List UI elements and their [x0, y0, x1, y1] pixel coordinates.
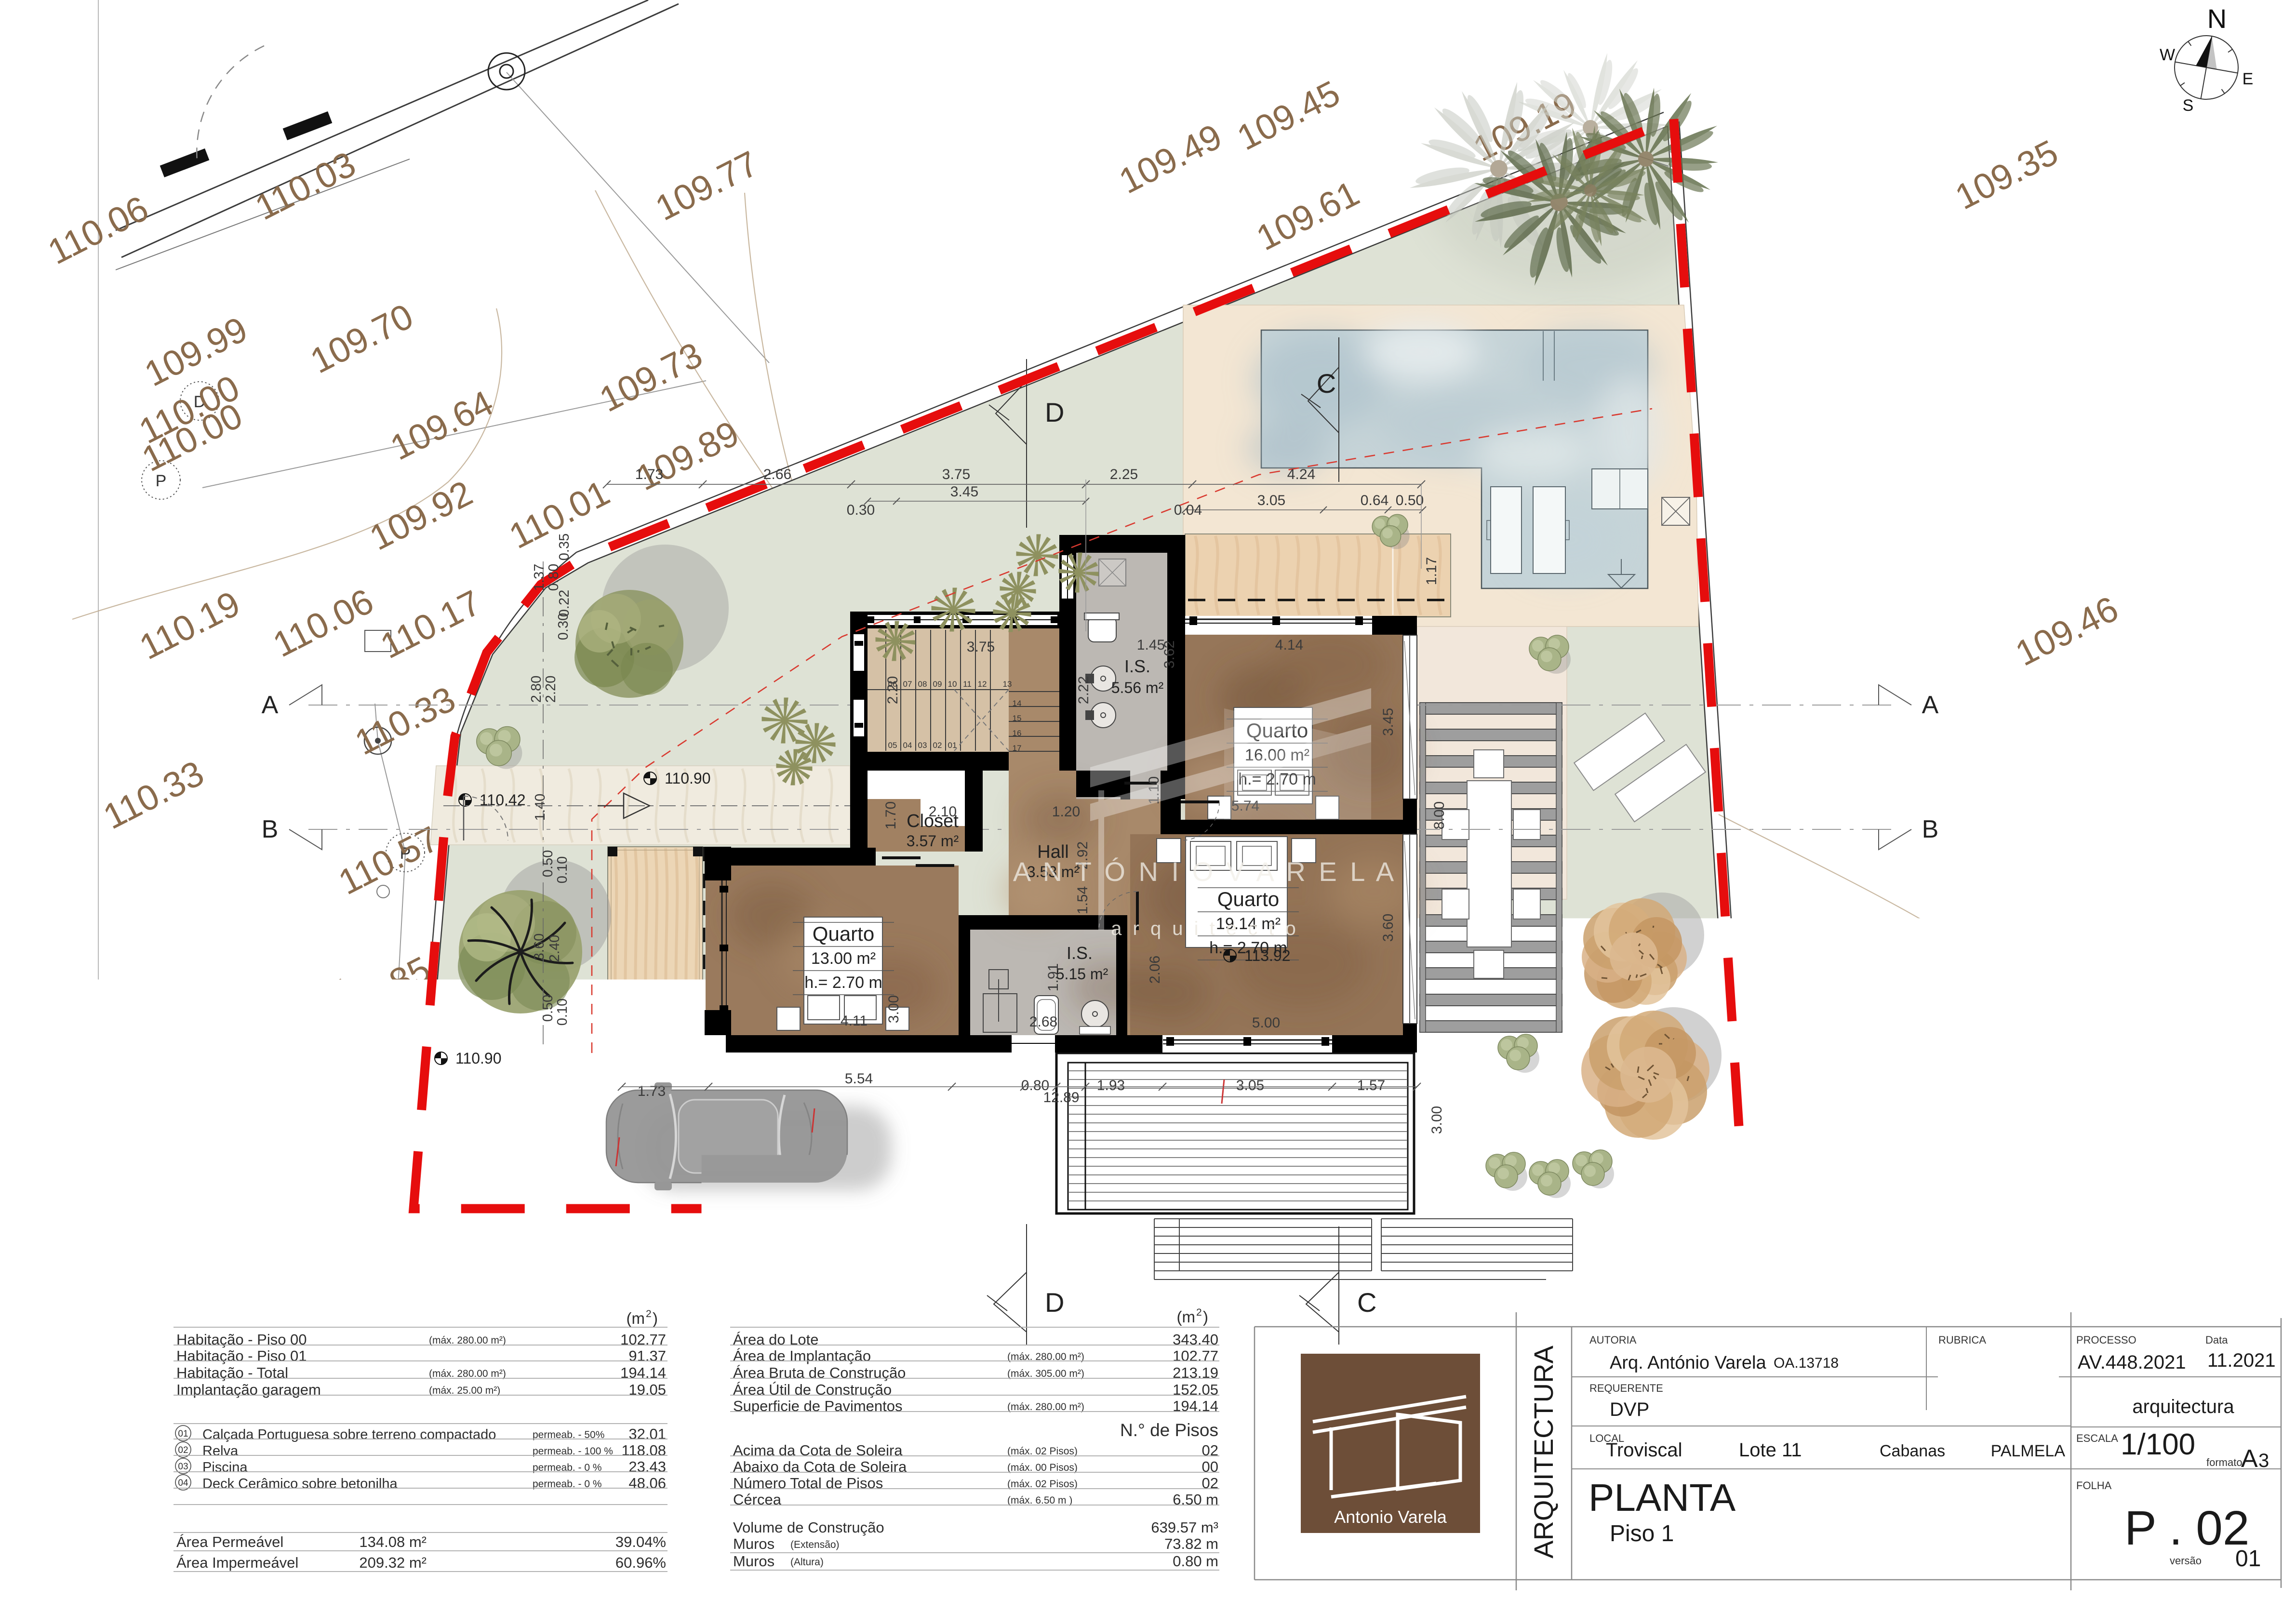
svg-text:3.57 m²: 3.57 m² [907, 832, 959, 850]
svg-text:13.00 m²: 13.00 m² [811, 949, 876, 968]
svg-text:134.08 m²: 134.08 m² [359, 1533, 427, 1550]
svg-text:04: 04 [903, 741, 912, 750]
svg-text:1.91: 1.91 [1045, 963, 1061, 991]
svg-text:Troviscal: Troviscal [1606, 1439, 1682, 1461]
svg-text:C: C [1317, 368, 1336, 399]
svg-text:5.15 m²: 5.15 m² [1056, 965, 1108, 983]
svg-text:A: A [2241, 1445, 2258, 1473]
svg-text:209.32 m²: 209.32 m² [359, 1554, 427, 1571]
svg-text:2: 2 [1196, 1307, 1202, 1318]
svg-text:2.66: 2.66 [763, 466, 791, 482]
svg-text:FOLHA: FOLHA [2076, 1479, 2112, 1492]
svg-text:1.40: 1.40 [533, 794, 548, 821]
svg-text:AUTORIA: AUTORIA [1589, 1334, 1637, 1346]
svg-text:1.93: 1.93 [1097, 1078, 1125, 1093]
svg-text:B: B [262, 815, 279, 843]
svg-text:07: 07 [903, 680, 912, 689]
svg-text:639.57 m³: 639.57 m³ [1151, 1519, 1218, 1536]
svg-text:A: A [262, 691, 279, 719]
svg-text:60.96%: 60.96% [615, 1554, 666, 1571]
svg-text:3.60: 3.60 [532, 933, 547, 960]
svg-text:P . 02: P . 02 [2124, 1501, 2249, 1555]
svg-text:Área Permeável: Área Permeável [176, 1533, 283, 1550]
svg-text:Deck Cerâmico sobre betonilha: Deck Cerâmico sobre betonilha [202, 1476, 398, 1492]
svg-text:RUBRICA: RUBRICA [1938, 1334, 1986, 1346]
svg-text:0.50: 0.50 [540, 995, 556, 1022]
svg-text:Calçada Portuguesa sobre terre: Calçada Portuguesa sobre terreno compact… [202, 1427, 496, 1442]
svg-text:2.06: 2.06 [1147, 956, 1163, 984]
svg-text:17: 17 [1013, 744, 1022, 753]
svg-text:Arq. António Varela: Arq. António Varela [1610, 1353, 1766, 1373]
svg-text:2: 2 [646, 1308, 652, 1319]
svg-text:0.10: 0.10 [555, 999, 570, 1026]
svg-text:PALMELA: PALMELA [1991, 1442, 2066, 1460]
svg-text:3.60: 3.60 [1380, 914, 1396, 942]
svg-text:Muros: Muros [733, 1535, 774, 1552]
svg-text:ESCALA: ESCALA [2076, 1432, 2118, 1444]
svg-text:118.08: 118.08 [621, 1442, 666, 1459]
svg-text:0.30: 0.30 [556, 613, 571, 640]
svg-text:3.45: 3.45 [950, 484, 978, 500]
svg-text:0.30: 0.30 [847, 502, 875, 518]
svg-text:): ) [653, 1309, 658, 1327]
svg-text:01: 01 [948, 741, 957, 750]
svg-text:13: 13 [1003, 680, 1012, 689]
svg-text:4.11: 4.11 [841, 1013, 868, 1029]
svg-text:(máx. 02 Pisos): (máx. 02 Pisos) [1007, 1479, 1078, 1490]
svg-text:12.89: 12.89 [1043, 1090, 1079, 1106]
svg-text:formato: formato [2206, 1456, 2243, 1468]
svg-text:113.92: 113.92 [1244, 947, 1291, 964]
svg-text:Muros: Muros [733, 1553, 774, 1570]
svg-text:4.14: 4.14 [1275, 637, 1303, 653]
svg-text:2.68: 2.68 [1029, 1014, 1057, 1030]
svg-text:1.57: 1.57 [1357, 1078, 1385, 1093]
svg-text:Data: Data [2205, 1334, 2228, 1346]
svg-text:1.45: 1.45 [1137, 637, 1165, 653]
svg-text:5.54: 5.54 [845, 1071, 873, 1087]
svg-text:91.37: 91.37 [628, 1347, 666, 1364]
svg-text:110.90: 110.90 [455, 1050, 502, 1067]
svg-text:A N T Ó N I O V A R E L A: A N T Ó N I O V A R E L A [1013, 856, 1397, 887]
svg-text:N: N [2207, 3, 2227, 34]
svg-text:versão: versão [2170, 1555, 2202, 1567]
svg-text:2.10: 2.10 [929, 804, 957, 820]
svg-text:PLANTA: PLANTA [1589, 1476, 1736, 1519]
svg-text:(máx. 280.00 m²): (máx. 280.00 m²) [429, 1335, 506, 1346]
svg-text:5.56 m²: 5.56 m² [1111, 679, 1164, 696]
svg-text:11.2021: 11.2021 [2207, 1350, 2276, 1371]
svg-text:02: 02 [178, 1445, 188, 1455]
svg-text:3.62: 3.62 [1161, 640, 1177, 668]
svg-text:N.° de Pisos: N.° de Pisos [1120, 1420, 1218, 1440]
svg-text:OA.13718: OA.13718 [1774, 1355, 1839, 1371]
svg-text:3.45: 3.45 [1380, 708, 1396, 736]
svg-text:(Altura): (Altura) [790, 1557, 824, 1568]
svg-text:10: 10 [948, 680, 957, 689]
svg-text:ARQUITECTURA: ARQUITECTURA [1528, 1345, 1559, 1558]
svg-text:B: B [1922, 815, 1939, 843]
svg-text:(máx. 280.00 m²): (máx. 280.00 m²) [429, 1368, 506, 1379]
svg-text:3: 3 [2258, 1450, 2269, 1471]
svg-text:23.43: 23.43 [628, 1458, 666, 1475]
svg-text:Relva: Relva [202, 1443, 239, 1459]
svg-text:0.35: 0.35 [557, 533, 572, 560]
svg-text:11: 11 [963, 680, 972, 689]
svg-text:(máx. 25.00 m²): (máx. 25.00 m²) [429, 1385, 500, 1396]
svg-text:03: 03 [918, 741, 927, 750]
svg-text:5.00: 5.00 [1252, 1015, 1280, 1031]
svg-text:Piso 1: Piso 1 [1610, 1521, 1674, 1546]
svg-text:2.25: 2.25 [1110, 466, 1138, 482]
svg-text:3.00: 3.00 [1429, 1106, 1445, 1134]
svg-text:2.80: 2.80 [529, 676, 544, 703]
svg-text:0.80: 0.80 [546, 564, 561, 591]
svg-text:(máx. 280.00 m²): (máx. 280.00 m²) [1007, 1401, 1084, 1412]
svg-text:Lote 11: Lote 11 [1739, 1439, 1802, 1461]
svg-text:W: W [2160, 46, 2175, 64]
svg-text:3.05: 3.05 [1236, 1078, 1264, 1093]
svg-text:REQUERENTE: REQUERENTE [1589, 1382, 1663, 1394]
svg-text:Área de Implantação: Área de Implantação [733, 1347, 871, 1364]
svg-text:8.00: 8.00 [1431, 801, 1447, 829]
svg-text:01: 01 [2235, 1546, 2261, 1572]
svg-text:Habitação - Piso 01: Habitação - Piso 01 [176, 1347, 307, 1364]
svg-text:0.04: 0.04 [1174, 502, 1202, 518]
svg-text:AV.448.2021: AV.448.2021 [2078, 1352, 2186, 1373]
svg-text:(máx. 02 Pisos): (máx. 02 Pisos) [1007, 1446, 1078, 1457]
svg-text:Piscina: Piscina [202, 1460, 248, 1475]
svg-text:(máx. 6.50 m ): (máx. 6.50 m ) [1007, 1495, 1072, 1506]
svg-text:D: D [1045, 1287, 1064, 1318]
svg-text:Volume de Construção: Volume de Construção [733, 1519, 884, 1536]
svg-text:2.22: 2.22 [1076, 676, 1092, 704]
svg-text:3.75: 3.75 [967, 639, 995, 655]
svg-text:3.00: 3.00 [886, 995, 902, 1023]
svg-text:PROCESSO: PROCESSO [2076, 1334, 2136, 1346]
svg-text:0.80 m: 0.80 m [1173, 1553, 1218, 1570]
svg-text:h.= 2.70 m: h.= 2.70 m [804, 973, 882, 992]
svg-text:1/100: 1/100 [2121, 1428, 2195, 1461]
svg-text:3.75: 3.75 [942, 466, 970, 482]
svg-text:04: 04 [178, 1478, 188, 1488]
svg-text:12: 12 [978, 680, 987, 689]
svg-text:(m: (m [627, 1309, 645, 1327]
svg-text:1.73: 1.73 [635, 466, 663, 482]
svg-text:14: 14 [1013, 699, 1022, 708]
svg-text:16: 16 [1013, 729, 1022, 738]
svg-text:1.70: 1.70 [883, 801, 899, 829]
svg-text:1.20: 1.20 [1052, 804, 1080, 820]
svg-text:3.05: 3.05 [1257, 493, 1285, 508]
svg-text:32.01: 32.01 [628, 1426, 666, 1442]
svg-text:48.06: 48.06 [628, 1475, 666, 1492]
svg-text:arquitectura: arquitectura [2132, 1396, 2234, 1417]
svg-text:0.22: 0.22 [557, 590, 572, 617]
svg-text:2.20: 2.20 [885, 676, 901, 704]
svg-text:15: 15 [1013, 714, 1022, 723]
svg-text:S: S [2183, 96, 2194, 115]
svg-text:08: 08 [918, 680, 927, 689]
svg-text:C: C [1357, 1287, 1376, 1318]
svg-text:05: 05 [888, 741, 897, 750]
svg-text:09: 09 [933, 680, 942, 689]
svg-text:0.50: 0.50 [1396, 493, 1424, 508]
svg-text:1.17: 1.17 [1424, 557, 1440, 585]
svg-text:(máx. 305.00 m²): (máx. 305.00 m²) [1007, 1368, 1084, 1379]
svg-text:A: A [1922, 691, 1939, 719]
svg-text:0.64: 0.64 [1361, 493, 1388, 508]
svg-text:1.54: 1.54 [1075, 886, 1091, 914]
svg-text:Área Impermeável: Área Impermeável [176, 1554, 298, 1571]
svg-text:0.50: 0.50 [540, 850, 556, 877]
svg-text:Antonio Varela: Antonio Varela [1334, 1507, 1447, 1527]
svg-text:a r q u i t e c t o: a r q u i t e c t o [1111, 918, 1299, 939]
svg-text:03: 03 [178, 1462, 188, 1472]
svg-text:(máx. 00 Pisos): (máx. 00 Pisos) [1007, 1462, 1078, 1473]
svg-text:Quarto: Quarto [1217, 888, 1279, 910]
svg-text:): ) [1203, 1308, 1208, 1326]
svg-text:01: 01 [178, 1429, 188, 1439]
svg-text:110.90: 110.90 [665, 770, 711, 787]
svg-text:4.24: 4.24 [1287, 466, 1315, 482]
svg-text:Quarto: Quarto [813, 922, 874, 945]
svg-text:102.77: 102.77 [1173, 1347, 1218, 1364]
svg-text:(m: (m [1177, 1308, 1195, 1326]
svg-text:2.40: 2.40 [547, 935, 562, 962]
svg-text:E: E [2243, 70, 2254, 88]
svg-text:I.S.: I.S. [1124, 656, 1150, 676]
svg-text:39.04%: 39.04% [615, 1533, 666, 1550]
svg-text:1.37: 1.37 [532, 564, 547, 591]
svg-text:Cabanas: Cabanas [1880, 1442, 1945, 1460]
svg-text:1.73: 1.73 [638, 1083, 666, 1099]
svg-text:2.20: 2.20 [543, 676, 559, 703]
svg-text:DVP: DVP [1610, 1399, 1649, 1420]
svg-text:I.S.: I.S. [1067, 943, 1093, 963]
svg-text:(Extensão): (Extensão) [790, 1539, 840, 1550]
svg-text:02: 02 [933, 741, 942, 750]
svg-text:73.82 m: 73.82 m [1164, 1535, 1218, 1552]
svg-text:D: D [1045, 397, 1064, 427]
svg-text:0.10: 0.10 [555, 856, 570, 883]
